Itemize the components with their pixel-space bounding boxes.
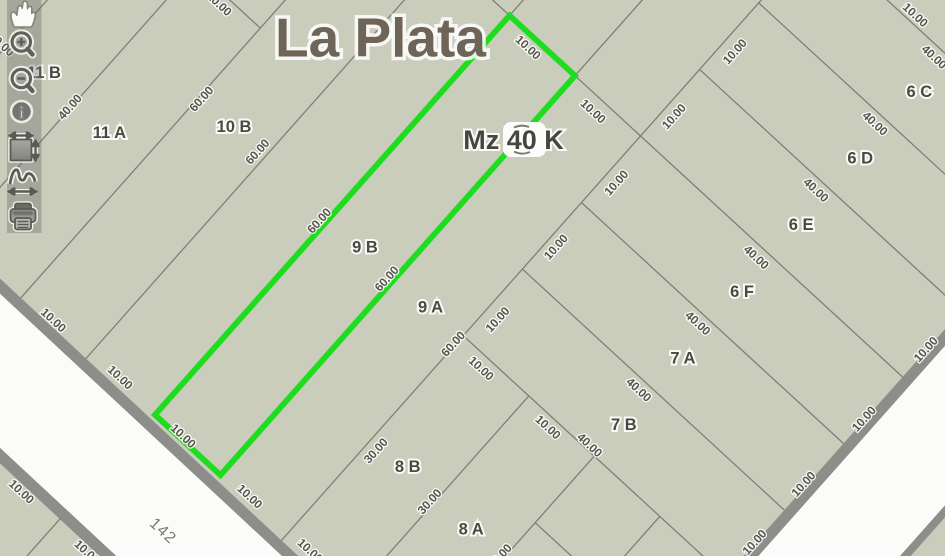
svg-text:6 E: 6 E <box>789 216 814 234</box>
svg-text:9 B: 9 B <box>352 238 378 256</box>
svg-text:9 A: 9 A <box>418 299 443 317</box>
svg-text:6 F: 6 F <box>730 283 754 301</box>
svg-text:10 B: 10 B <box>217 118 252 136</box>
svg-text:i: i <box>19 103 24 123</box>
svg-text:6 D: 6 D <box>847 150 873 168</box>
svg-text:7 B: 7 B <box>611 416 637 434</box>
svg-text:Mz 40 K: Mz 40 K <box>463 125 564 155</box>
svg-text:6 C: 6 C <box>906 83 932 101</box>
svg-text:8 A: 8 A <box>459 521 484 539</box>
svg-text:La Plata: La Plata <box>275 7 486 69</box>
svg-text:7 A: 7 A <box>670 349 695 367</box>
svg-text:8 B: 8 B <box>395 458 421 476</box>
svg-text:11 A: 11 A <box>93 124 126 142</box>
